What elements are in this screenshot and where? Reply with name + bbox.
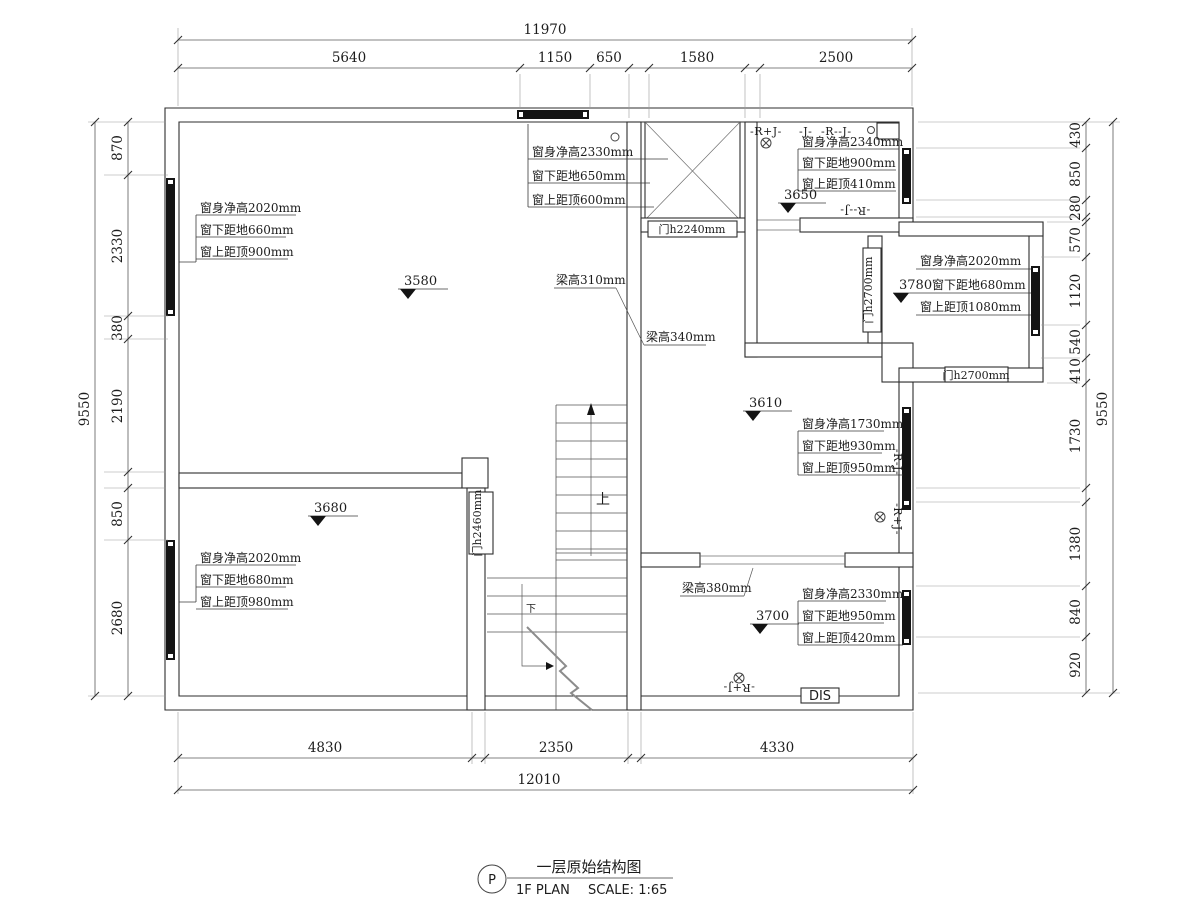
svg-text:窗身净高2340mm: 窗身净高2340mm [802,134,904,149]
floorplan-drawing: 上 下 门h2240mm 门h2460mm 门h2700mm 门h2700mm … [0,0,1200,910]
svg-text:窗下距地950mm: 窗下距地950mm [802,609,896,623]
mark-rj-top-left: -R+J- [750,125,782,138]
dis-label: DIS [809,689,831,704]
svg-text:2190: 2190 [110,389,126,423]
svg-text:410: 410 [1068,358,1084,384]
drawing-scale: SCALE: 1:65 [588,883,667,898]
extension-lines [88,28,1120,794]
level-3650: 3650 [778,188,826,213]
circle-symbol [868,127,875,134]
svg-text:1120: 1120 [1068,274,1084,308]
door-2700-h-label: 门h2700mm [943,368,1011,382]
stair-down-label: 下 [526,604,536,615]
junction-symbol [875,512,885,522]
svg-text:窗下距地650mm: 窗下距地650mm [532,169,626,183]
dimensions: 11970 5640 1150 650 1580 2500 4830 2350 … [77,22,1120,794]
window-left-top [166,178,175,316]
beam-labels: 梁高310mm 梁高340mm 梁高380mm [554,272,753,596]
window-left-bottom [166,540,175,660]
dim-left-total: 9550 [77,392,93,426]
window-top [517,110,589,119]
svg-text:1380: 1380 [1068,527,1084,561]
dim-top-total: 11970 [524,22,567,38]
mark-rj-wall-upper: -R-J- [891,449,904,475]
stair-up-label: 上 [596,492,610,508]
title-bubble-letter: P [488,873,496,888]
door-2240-label: 门h2240mm [659,222,727,236]
annotation-window-mid: 窗身净高1730mm 窗下距地930mm 窗上距顶950mm [798,416,904,475]
level-3680: 3680 [308,501,358,526]
mark-rj-top-right: -R--J- [821,125,852,138]
annotation-window-br: 窗身净高2330mm 窗下距地950mm 窗上距顶420mm [798,586,904,645]
svg-text:850: 850 [1068,161,1084,187]
annotation-window-top: 窗身净高2330mm 窗下距地650mm 窗上距顶600mm [528,124,668,207]
drawing-title-en: 1F PLAN [516,883,570,898]
level-3580: 3580 [398,274,448,299]
stairs: 上 下 [487,403,627,710]
svg-text:窗下距地660mm: 窗下距地660mm [200,223,294,237]
svg-text:4330: 4330 [760,740,794,756]
door-2700-v-label: 门h2700mm [861,256,875,324]
svg-text:2680: 2680 [110,601,126,635]
junction-symbol [761,138,771,148]
door-labels: 门h2240mm 门h2460mm 门h2700mm 门h2700mm [469,221,1010,556]
svg-text:850: 850 [110,501,126,527]
svg-text:2330: 2330 [110,229,126,263]
annotation-window-annex: 窗身净高2020mm 窗下距地680mm 窗上距顶1080mm 3780 [893,253,1031,315]
svg-text:窗上距顶980mm: 窗上距顶980mm [200,595,294,609]
svg-text:920: 920 [1068,652,1084,678]
svg-text:870: 870 [110,135,126,161]
mark-rj-wall-lower: -R+J- [891,503,904,535]
svg-text:2350: 2350 [539,740,573,756]
level-3610: 3610 [743,396,792,421]
svg-text:540: 540 [1068,329,1084,355]
beam-310-label: 梁高310mm [556,272,626,287]
svg-text:窗身净高2020mm: 窗身净高2020mm [200,200,302,215]
svg-text:窗上距顶1080mm: 窗上距顶1080mm [920,300,1022,314]
svg-text:窗上距顶900mm: 窗上距顶900mm [200,245,294,259]
beam-380-label: 梁高380mm [682,580,752,595]
svg-text:1580: 1580 [680,50,714,66]
svg-text:1730: 1730 [1068,419,1084,453]
svg-text:窗下距地680mm: 窗下距地680mm [200,573,294,587]
svg-text:3650: 3650 [784,188,817,203]
svg-text:窗上距顶600mm: 窗上距顶600mm [532,193,626,207]
svg-text:650: 650 [596,50,622,66]
annotation-window-tr: 窗身净高2340mm 窗下距地900mm 窗上距顶410mm [798,134,904,191]
stair-down-arrow [546,662,554,670]
svg-text:4830: 4830 [308,740,342,756]
light-symbol [611,133,619,141]
svg-text:380: 380 [110,315,126,341]
svg-text:窗下距地900mm: 窗下距地900mm [802,156,896,170]
svg-text:570: 570 [1068,227,1084,253]
dim-right-total: 9550 [1095,392,1111,426]
svg-text:3580: 3580 [404,274,437,289]
svg-text:窗上距顶420mm: 窗上距顶420mm [802,631,896,645]
dim-bottom-total: 12010 [518,772,561,788]
svg-text:5640: 5640 [332,50,366,66]
level-3780: 3780 [899,278,932,293]
level-3700: 3700 [750,609,799,634]
break-line [527,627,592,710]
svg-text:3610: 3610 [749,396,782,411]
window-topright [902,148,911,204]
svg-text:窗身净高2020mm: 窗身净高2020mm [920,253,1022,268]
mark-rj-tr-bottom: -R--J- [840,204,871,217]
drawing-title-cn: 一层原始结构图 [536,858,641,876]
svg-text:窗上距顶950mm: 窗上距顶950mm [802,461,896,475]
svg-text:2500: 2500 [819,50,853,66]
window-bottom-right [902,590,911,645]
title-block: P 一层原始结构图 1F PLAN SCALE: 1:65 [478,858,673,898]
beam-340-label: 梁高340mm [646,329,716,344]
window-annex [1031,266,1040,336]
svg-text:3700: 3700 [756,609,789,624]
annotation-window-tl: 窗身净高2020mm 窗下距地660mm 窗上距顶900mm [179,200,302,262]
floorplan-page: 上 下 门h2240mm 门h2460mm 门h2700mm 门h2700mm … [0,0,1200,910]
svg-text:窗下距地680mm: 窗下距地680mm [932,278,1026,292]
svg-text:1150: 1150 [538,50,572,66]
svg-text:窗下距地930mm: 窗下距地930mm [802,439,896,453]
svg-text:840: 840 [1068,599,1084,625]
svg-text:3680: 3680 [314,501,347,516]
door-2460-label: 门h2460mm [470,489,484,557]
svg-text:窗身净高2020mm: 窗身净高2020mm [200,550,302,565]
svg-text:280: 280 [1068,195,1084,221]
svg-text:窗身净高1730mm: 窗身净高1730mm [802,416,904,431]
annotation-window-bl: 窗身净高2020mm 窗下距地680mm 窗上距顶980mm [179,550,302,609]
svg-text:窗身净高2330mm: 窗身净高2330mm [802,586,904,601]
svg-text:430: 430 [1068,122,1084,148]
svg-text:窗身净高2330mm: 窗身净高2330mm [532,144,634,159]
mark-j-top: -J- [799,125,812,138]
